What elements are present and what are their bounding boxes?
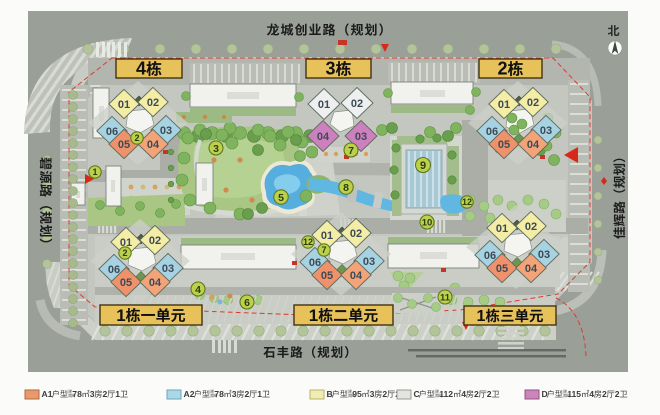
svg-text:1: 1 xyxy=(257,389,262,399)
svg-text:3: 3 xyxy=(232,389,237,399)
svg-text:7: 7 xyxy=(348,145,354,157)
svg-text:06: 06 xyxy=(108,264,120,276)
svg-text:02: 02 xyxy=(147,97,159,109)
svg-text:04: 04 xyxy=(149,277,162,289)
svg-text:1: 1 xyxy=(309,306,318,325)
svg-text:04: 04 xyxy=(350,270,363,282)
svg-text:3: 3 xyxy=(325,59,335,79)
svg-text:03: 03 xyxy=(540,125,552,137)
svg-text:8: 8 xyxy=(343,182,349,194)
svg-text:78: 78 xyxy=(72,389,82,399)
svg-text:12: 12 xyxy=(462,197,472,207)
svg-text:A1: A1 xyxy=(42,389,53,399)
svg-text:2: 2 xyxy=(245,389,250,399)
svg-text:03: 03 xyxy=(162,263,174,275)
svg-text:3: 3 xyxy=(213,143,219,155)
svg-text:7: 7 xyxy=(321,245,326,255)
svg-text:D: D xyxy=(542,389,548,399)
svg-text:1: 1 xyxy=(115,389,120,399)
svg-text:A2: A2 xyxy=(184,389,195,399)
svg-text:1: 1 xyxy=(92,167,97,177)
svg-text:02: 02 xyxy=(351,98,363,110)
svg-text:2: 2 xyxy=(474,389,479,399)
svg-text:02: 02 xyxy=(525,221,537,233)
svg-text:01: 01 xyxy=(318,99,330,111)
svg-text:2: 2 xyxy=(497,59,507,79)
svg-text:112: 112 xyxy=(439,389,453,399)
svg-text:12: 12 xyxy=(303,237,313,247)
svg-text:03: 03 xyxy=(538,249,550,261)
svg-text:3: 3 xyxy=(90,389,95,399)
svg-text:1: 1 xyxy=(477,308,486,325)
svg-text:4: 4 xyxy=(195,284,201,296)
svg-text:2: 2 xyxy=(615,389,620,399)
svg-text:02: 02 xyxy=(350,228,362,240)
svg-text:05: 05 xyxy=(321,270,333,282)
svg-text:06: 06 xyxy=(484,250,496,262)
svg-text:04: 04 xyxy=(147,139,160,151)
svg-text:05: 05 xyxy=(120,277,132,289)
svg-text:1: 1 xyxy=(116,306,125,325)
svg-text:3: 3 xyxy=(370,389,375,399)
svg-text:06: 06 xyxy=(486,126,498,138)
svg-text:2: 2 xyxy=(122,248,127,258)
svg-text:2: 2 xyxy=(103,389,108,399)
svg-text:6: 6 xyxy=(244,297,250,309)
svg-text:78: 78 xyxy=(214,389,224,399)
svg-text:95: 95 xyxy=(352,389,362,399)
svg-text:11: 11 xyxy=(440,292,451,303)
svg-text:115: 115 xyxy=(567,389,581,399)
svg-text:10: 10 xyxy=(422,217,433,228)
svg-text:4: 4 xyxy=(136,59,146,79)
svg-text:06: 06 xyxy=(309,257,321,269)
svg-text:2: 2 xyxy=(487,389,492,399)
svg-text:C: C xyxy=(414,389,420,399)
svg-text:02: 02 xyxy=(527,97,539,109)
svg-text:04: 04 xyxy=(527,139,540,151)
svg-text:2: 2 xyxy=(134,133,139,143)
svg-text:9: 9 xyxy=(420,160,426,172)
svg-text:05: 05 xyxy=(496,263,508,275)
svg-text:B: B xyxy=(327,389,333,399)
svg-text:01: 01 xyxy=(118,99,130,111)
svg-text:2: 2 xyxy=(382,389,387,399)
svg-text:04: 04 xyxy=(317,131,330,143)
svg-text:4: 4 xyxy=(461,389,466,399)
svg-text:06: 06 xyxy=(106,126,118,138)
svg-text:01: 01 xyxy=(498,99,510,111)
svg-text:2: 2 xyxy=(602,389,607,399)
svg-text:05: 05 xyxy=(118,139,130,151)
svg-text:02: 02 xyxy=(149,235,161,247)
svg-text:03: 03 xyxy=(363,256,375,268)
svg-text:5: 5 xyxy=(278,192,284,204)
svg-text:4: 4 xyxy=(589,389,594,399)
svg-text:03: 03 xyxy=(160,125,172,137)
svg-text:04: 04 xyxy=(525,263,538,275)
svg-text:01: 01 xyxy=(496,223,508,235)
svg-text:01: 01 xyxy=(321,230,333,242)
svg-text:05: 05 xyxy=(498,139,510,151)
svg-text:03: 03 xyxy=(355,131,367,143)
